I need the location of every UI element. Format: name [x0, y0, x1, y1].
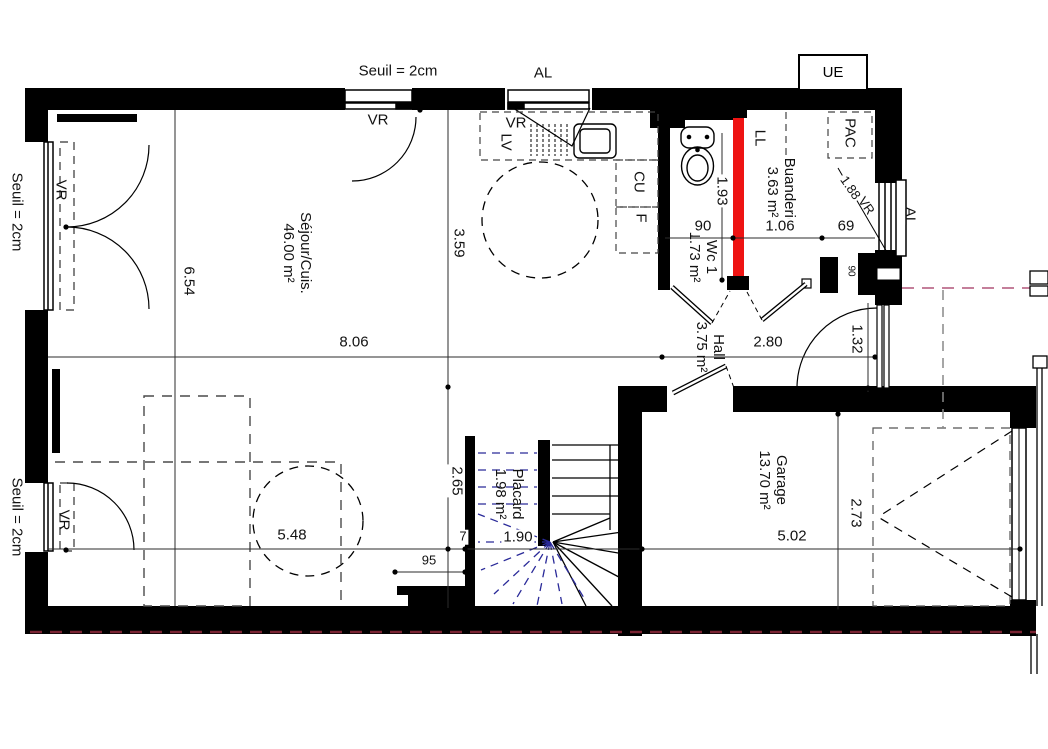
vr-label-left-lower-door: VR [55, 510, 72, 531]
vr-label-top-window: VR [368, 113, 389, 130]
dim-2-65: 2.65 [448, 464, 465, 497]
room-area: 3.75 m² [692, 322, 709, 373]
cu-label: CU [630, 171, 647, 193]
dim-7: 7 [457, 530, 468, 545]
garage-door [873, 428, 1026, 606]
room-name: Placard [508, 469, 525, 520]
room-label-garage: Garage 13.70 m² [755, 450, 789, 509]
room-name: Buanderie [780, 158, 797, 226]
dim-2-80: 2.80 [751, 335, 784, 352]
ue-unit-box: UE [798, 54, 868, 91]
room-area: 13.70 m² [755, 450, 772, 509]
room-area: 1.98 m² [491, 469, 508, 520]
room-name: Wc 1 [702, 232, 719, 283]
dim-1-90: 1.90 [501, 530, 534, 547]
room-area: 46.00 m² [279, 212, 296, 294]
room-label-sejour: Séjour/Cuis. 46.00 m² [279, 212, 313, 294]
red-highlight-wall [733, 118, 744, 276]
al-label-top: AL [534, 66, 552, 83]
furniture-outline [144, 396, 250, 606]
room-label-placard: Placard 1.98 m² [491, 469, 525, 520]
toilet [681, 127, 714, 185]
room-label-hall: Hall 3.75 m² [692, 322, 726, 373]
round-table [253, 466, 363, 576]
dim-6-54: 6.54 [180, 264, 197, 297]
dim-1-32: 1.32 [848, 322, 865, 355]
floor-plan-drawing [0, 0, 1048, 749]
dim-1-93: 1.93 [713, 174, 730, 207]
dim-69: 69 [836, 219, 857, 236]
room-name: Séjour/Cuis. [296, 212, 313, 294]
room-name: Hall [709, 322, 726, 373]
dim-90-niche: 90 [845, 263, 856, 278]
seuil-label-left-bottom: Seuil = 2cm [8, 478, 25, 557]
dim-1-06: 1.06 [763, 219, 796, 236]
dim-5-02: 5.02 [775, 529, 808, 546]
ll-label: LL [751, 130, 768, 147]
dim-90-wc: 90 [693, 219, 714, 236]
lv-label: LV [497, 133, 514, 150]
floor-plan: UE Seuil = 2cm Seuil = 2cm Seuil = 2cm A… [0, 0, 1048, 749]
room-area: 3.63 m² [763, 158, 780, 226]
room-label-buanderie: Buanderie 3.63 m² [763, 158, 797, 226]
pac-label: PAC [841, 118, 858, 148]
kitchen-counter [480, 112, 872, 253]
al-label-right: AL [901, 207, 918, 225]
dim-95: 95 [420, 554, 438, 569]
vr-label-left-door: VR [52, 180, 69, 201]
vr-label-kitchen-window: VR [506, 116, 527, 133]
room-name: Garage [772, 450, 789, 509]
seuil-label-left-top: Seuil = 2cm [8, 173, 25, 252]
ue-label: UE [823, 64, 844, 81]
room-area: 1.73 m² [685, 232, 702, 283]
dim-5-48: 5.48 [275, 528, 308, 545]
room-label-wc: Wc 1 1.73 m² [685, 232, 719, 283]
seuil-label-top: Seuil = 2cm [359, 64, 438, 81]
f-label: F [632, 213, 649, 222]
dim-3-59: 3.59 [450, 226, 467, 259]
dim-2-73: 2.73 [847, 496, 864, 529]
wall-slot [877, 268, 900, 280]
dining-table [482, 162, 598, 278]
dim-8-06: 8.06 [337, 335, 370, 352]
